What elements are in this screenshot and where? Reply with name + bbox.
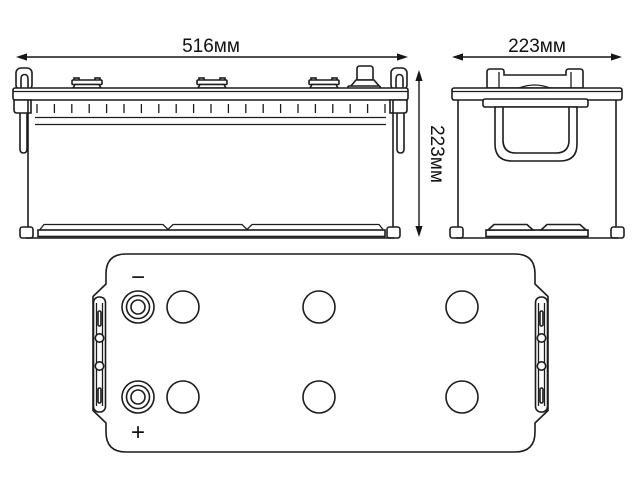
side-base-ridge-1 [488,225,533,231]
front-vent-cap-2 [197,78,227,88]
height-arrowhead-top [415,70,422,81]
vent-plug [167,291,199,323]
front-terminal-post [348,66,380,91]
front-vent-cap-3 [309,78,339,88]
vent-plug [303,381,335,413]
height-dimension: 223мм [415,70,447,237]
front-case [28,100,393,227]
front-foot-left [20,227,33,238]
height-arrowhead-bottom [415,226,422,237]
width-dimension: 516мм [16,36,408,61]
depth-arrowhead-left [452,53,463,60]
front-foot-right [387,227,400,238]
battery-dimension-diagram: 516мм 223мм 223мм [0,0,640,480]
handle-slot [98,311,101,326]
handle-slot [540,311,543,326]
width-arrowhead-right [397,53,408,60]
handle-pivot [537,334,545,342]
side-base-ridge-2 [541,225,586,231]
handle-pivot [95,334,103,342]
handle-mount-bar [483,99,588,107]
side-base-strip [486,230,588,237]
front-base-strip [38,230,385,237]
handle-pivot [95,362,103,370]
front-right-handle-rod [397,110,404,153]
vent-plug [446,291,478,323]
side-carry-handle [483,99,588,161]
terminal-post-top [357,66,373,80]
front-base-notched-edge [40,225,383,230]
vent-plug [167,381,199,413]
depth-dimension-label: 223мм [508,36,566,57]
width-dimension-label: 516мм [182,36,240,57]
side-view [450,69,624,238]
vent-plug [446,381,478,413]
cell-tick-marks [37,104,385,113]
negative-terminal [122,291,154,323]
front-left-handle-rod [20,110,27,153]
diagram-svg: 516мм 223мм 223мм [0,0,640,480]
side-base [450,225,624,239]
front-base [20,225,400,239]
width-arrowhead-left [16,53,27,60]
front-vent-cap-1 [72,78,102,88]
top-case-outline [93,254,548,452]
handle-slot [98,388,101,403]
height-dimension-label: 223мм [426,125,447,183]
positive-terminal [122,381,154,413]
lid-rail-band [13,88,408,100]
front-left-handle-knob [16,68,32,90]
depth-dimension: 223мм [452,36,622,61]
side-foot-left [450,227,463,238]
side-foot-right [611,227,624,238]
negative-polarity-label: − [131,264,145,291]
handle-pivot [537,362,545,370]
front-right-handle-knob [391,68,407,90]
depth-arrowhead-right [611,53,622,60]
vent-plug [303,291,335,323]
top-handle-right [536,297,548,412]
top-handle-left [94,297,106,412]
handle-slot [540,388,543,403]
front-view [13,66,408,238]
top-view: − + [93,254,548,452]
positive-polarity-label: + [131,419,145,446]
